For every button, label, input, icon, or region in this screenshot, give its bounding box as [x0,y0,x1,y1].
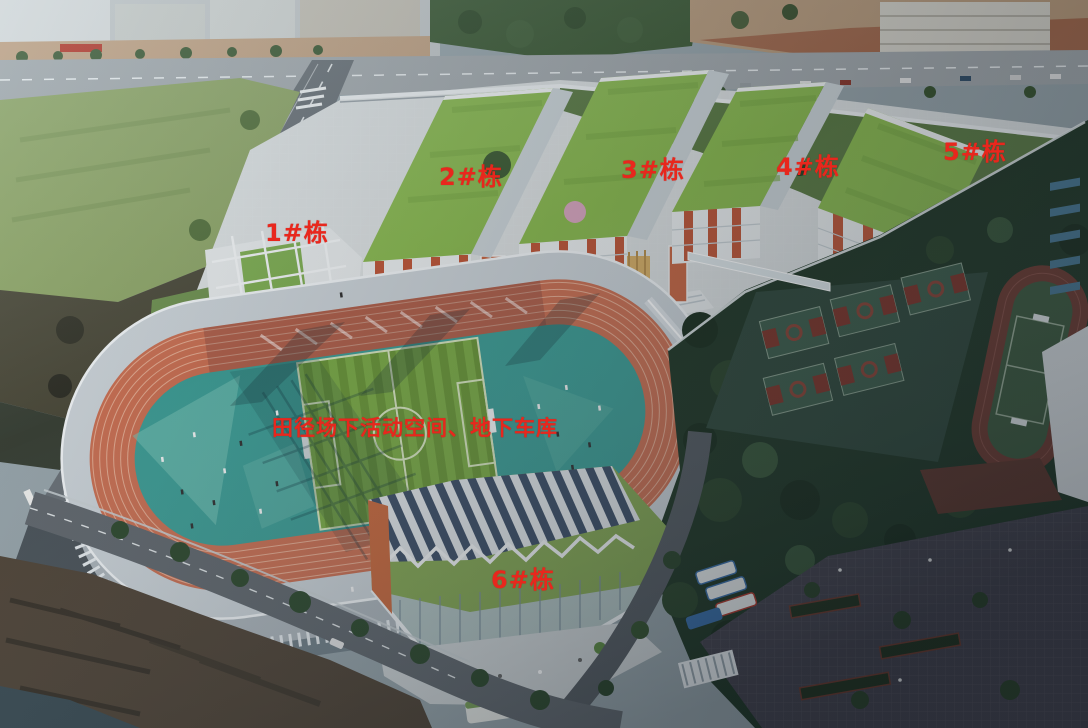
aerial-rendering-viewport: 1#栋 2#栋 3#栋 4#栋 5#栋 6#栋 田径场下活动空间、地下车库 [0,0,1088,728]
east-shadow-wash [0,0,1088,728]
underground-space-label: 田径场下活动空间、地下车库 [272,418,558,439]
building-label-1: 1#栋 [265,221,329,245]
campus-rendering [0,0,1088,728]
building-label-3: 3#栋 [621,158,685,182]
building-label-6: 6#栋 [491,568,555,592]
building-label-2: 2#栋 [439,165,503,189]
building-label-4: 4#栋 [776,155,840,179]
building-label-5: 5#栋 [943,140,1007,164]
